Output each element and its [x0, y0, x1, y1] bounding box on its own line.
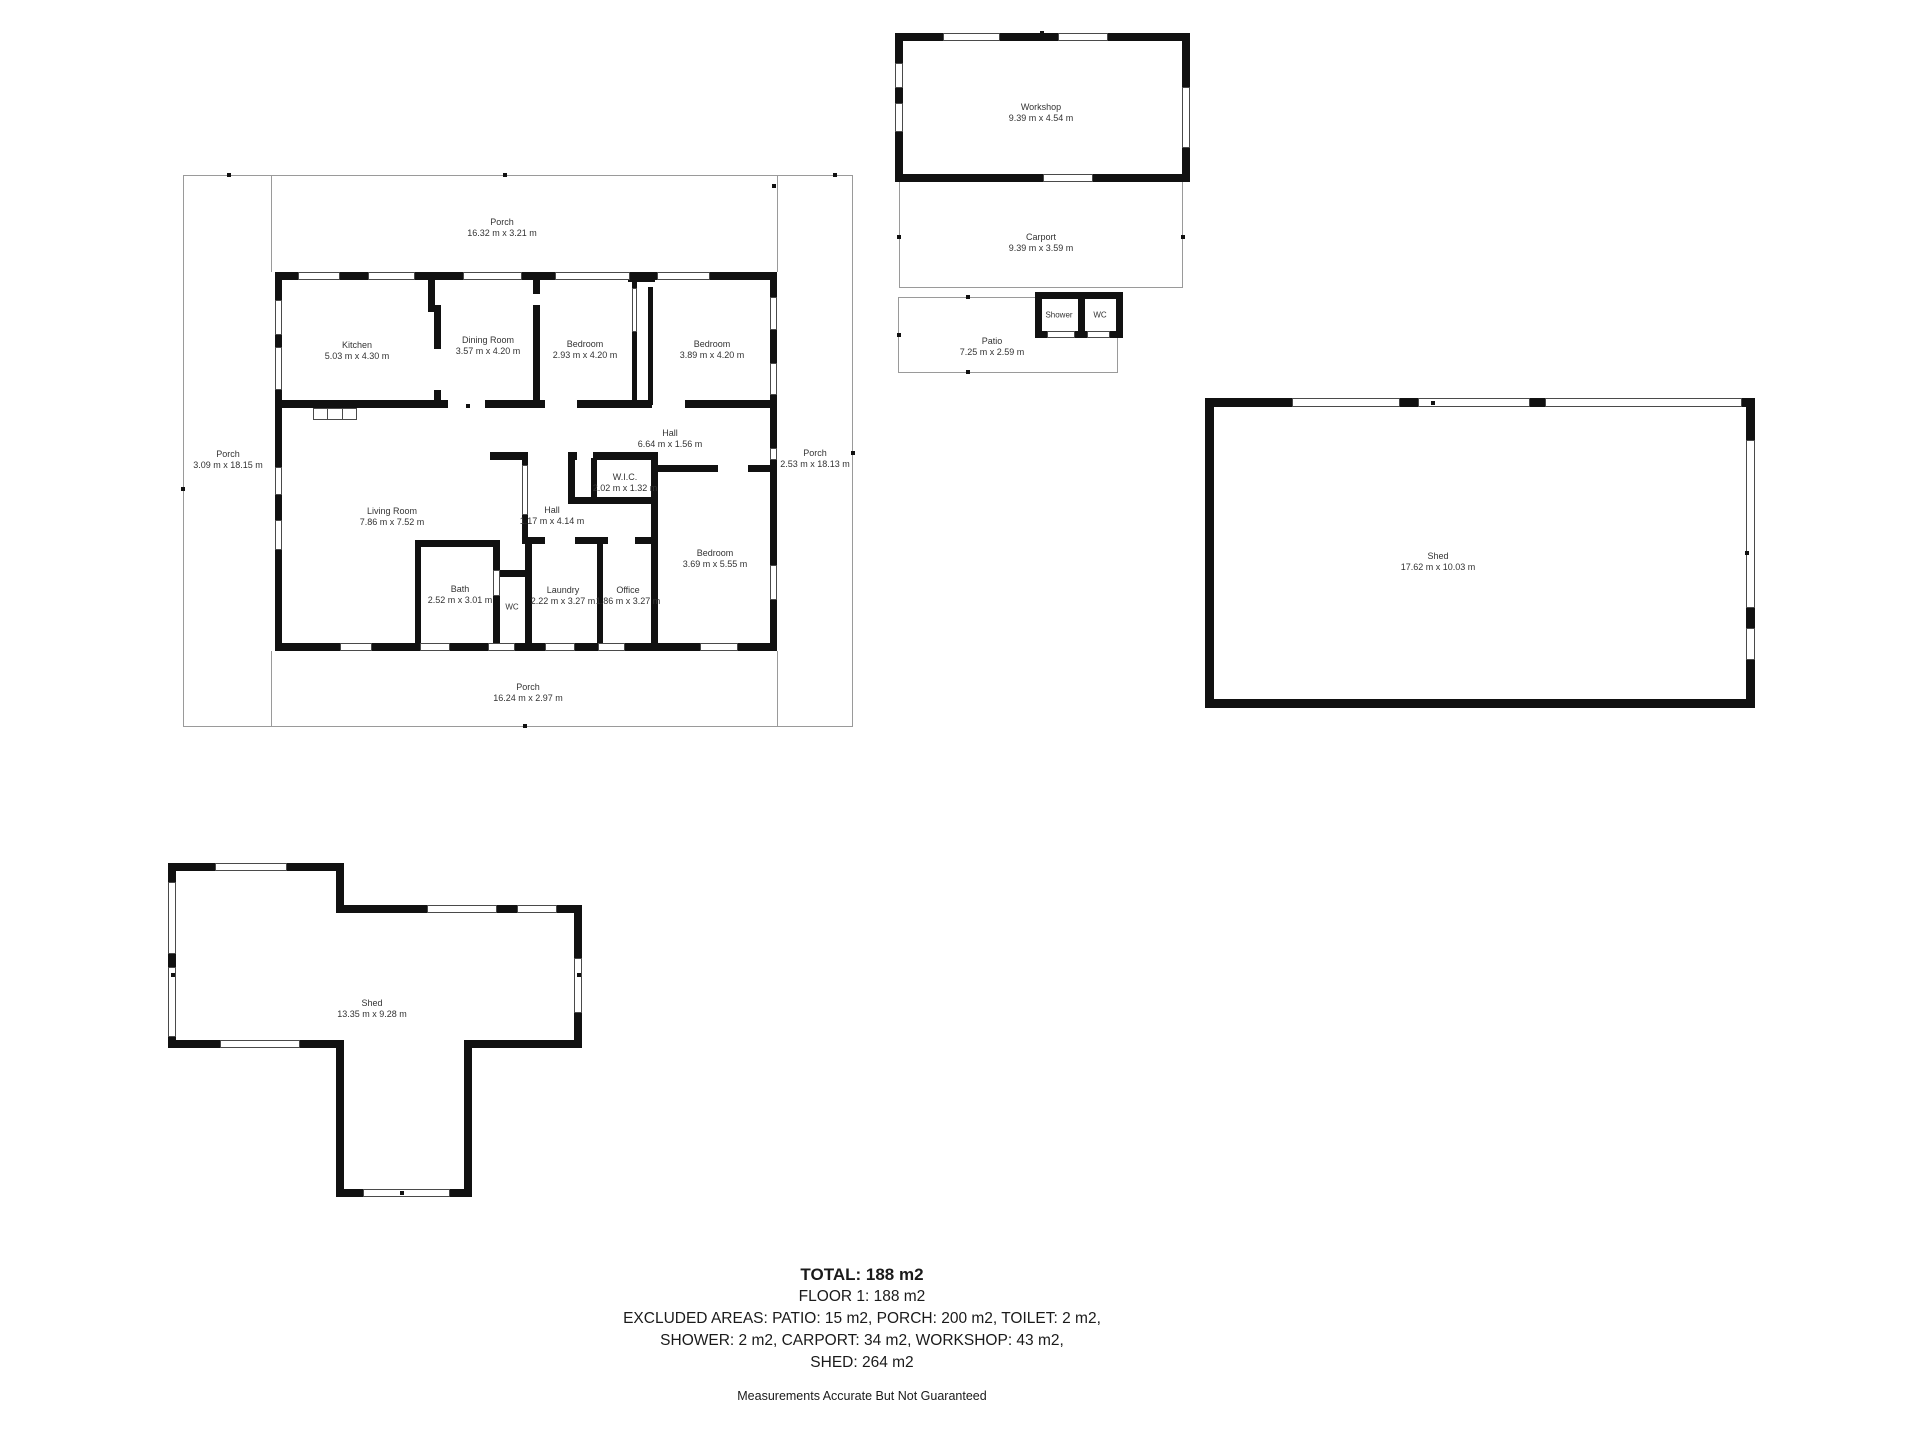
tick-mark	[851, 451, 855, 455]
summary-excluded-line1: EXCLUDED AREAS: PATIO: 15 m2, PORCH: 200…	[462, 1308, 1262, 1330]
window	[1545, 398, 1742, 407]
window	[770, 448, 777, 460]
room-label-bedroom1: Bedroom2.93 m x 4.20 m	[553, 339, 618, 361]
wall-segment	[568, 452, 575, 500]
room-name: Laundry	[531, 585, 596, 596]
window	[1746, 440, 1755, 608]
window	[517, 905, 557, 913]
tick-mark	[1431, 401, 1435, 405]
wall-segment	[748, 465, 777, 472]
room-dims: 3.69 m x 5.55 m	[683, 559, 748, 570]
wall-segment	[464, 1040, 472, 1197]
wall-segment	[648, 287, 653, 405]
window	[632, 288, 637, 332]
tick-mark	[227, 173, 231, 177]
porch-outline-line	[777, 175, 778, 272]
window	[574, 958, 582, 1013]
wall-segment	[434, 305, 441, 349]
porch-outline-line	[1117, 338, 1118, 373]
kitchen-counter	[313, 408, 357, 420]
wall-segment	[593, 452, 658, 460]
room-dims: 2.22 m x 3.27 m	[531, 596, 596, 607]
room-label-shower: Shower	[1045, 310, 1072, 321]
porch-outline-line	[777, 651, 778, 727]
window	[298, 272, 340, 280]
window	[427, 905, 497, 913]
room-name: WC	[505, 602, 518, 613]
wall-segment	[336, 1040, 344, 1197]
window	[598, 643, 625, 651]
room-label-shed-left: Shed13.35 m x 9.28 m	[337, 998, 407, 1020]
wall-segment	[1205, 398, 1292, 407]
wall-segment	[415, 540, 421, 643]
floorplan-canvas: Kitchen5.03 m x 4.30 m Dining Room3.57 m…	[0, 0, 1920, 1440]
tick-mark	[523, 724, 527, 728]
wall-segment	[577, 400, 652, 408]
room-name: Patio	[960, 336, 1025, 347]
room-name: Bedroom	[683, 548, 748, 559]
wall-segment	[575, 537, 608, 544]
window	[657, 272, 710, 280]
room-name: Carport	[1009, 232, 1074, 243]
summary-disclaimer: Measurements Accurate But Not Guaranteed	[462, 1388, 1262, 1404]
room-name: WC	[1093, 310, 1106, 321]
room-label-bath: Bath2.52 m x 3.01 m	[428, 584, 493, 606]
porch-outline-line	[899, 287, 1183, 288]
room-label-porch-right: Porch2.53 m x 18.13 m	[780, 448, 850, 470]
room-dims: 2.93 m x 4.20 m	[553, 350, 618, 361]
room-label-carport: Carport9.39 m x 3.59 m	[1009, 232, 1074, 254]
window	[895, 63, 903, 88]
room-name: Workshop	[1009, 102, 1074, 113]
porch-outline-line	[898, 372, 1118, 373]
room-label-wc: WC	[505, 602, 518, 613]
tick-mark	[1745, 551, 1749, 555]
window	[340, 643, 372, 651]
room-name: Kitchen	[325, 340, 390, 351]
window	[770, 297, 777, 330]
window	[493, 570, 500, 596]
room-label-bedroom3: Bedroom3.69 m x 5.55 m	[683, 548, 748, 570]
wall-segment	[568, 497, 658, 504]
room-label-hall-lower: Hall1.17 m x 4.14 m	[520, 505, 585, 527]
room-dims: 9.39 m x 3.59 m	[1009, 243, 1074, 254]
room-dims: 2.53 m x 18.13 m	[780, 459, 850, 470]
tick-mark	[171, 973, 175, 977]
room-dims: 3.89 m x 4.20 m	[680, 350, 745, 361]
wall-segment	[1746, 660, 1755, 708]
room-dims: 17.62 m x 10.03 m	[1401, 562, 1476, 573]
room-label-office: Office1.86 m x 3.27 m	[596, 585, 661, 607]
wall-segment	[485, 400, 545, 408]
wall-segment	[658, 465, 718, 472]
room-label-laundry: Laundry2.22 m x 3.27 m	[531, 585, 596, 607]
tick-mark	[503, 173, 507, 177]
room-label-hall-upper: Hall6.64 m x 1.56 m	[638, 428, 703, 450]
room-dims: 5.03 m x 4.30 m	[325, 351, 390, 362]
room-label-patio: Patio7.25 m x 2.59 m	[960, 336, 1025, 358]
room-label-porch-top: Porch16.32 m x 3.21 m	[467, 217, 537, 239]
wall-segment	[1746, 398, 1755, 440]
window	[943, 33, 1000, 41]
room-dims: 2.02 m x 1.32 m	[593, 483, 658, 494]
room-dims: 6.64 m x 1.56 m	[638, 439, 703, 450]
room-name: W.I.C.	[593, 472, 658, 483]
wall-segment	[1746, 608, 1755, 628]
window	[275, 347, 282, 390]
window	[1182, 87, 1190, 148]
porch-outline-line	[183, 175, 184, 727]
summary-excluded-line2: SHOWER: 2 m2, CARPORT: 34 m2, WORKSHOP: …	[462, 1330, 1262, 1352]
porch-outline-line	[271, 651, 272, 727]
kitchen-sink-right	[343, 409, 356, 419]
porch-outline-line	[271, 175, 272, 272]
room-name: Bedroom	[680, 339, 745, 350]
window	[1292, 398, 1400, 407]
room-dims: 16.24 m x 2.97 m	[493, 693, 563, 704]
wall-segment	[275, 400, 448, 408]
wall-segment	[635, 537, 655, 544]
window	[1047, 331, 1075, 338]
tick-mark	[833, 173, 837, 177]
room-label-porch-bottom: Porch16.24 m x 2.97 m	[493, 682, 563, 704]
wall-segment	[415, 540, 500, 547]
tick-mark	[1181, 235, 1185, 239]
room-dims: 3.09 m x 18.15 m	[193, 460, 263, 471]
window	[1087, 331, 1110, 338]
room-name: Porch	[493, 682, 563, 693]
window	[220, 1040, 300, 1048]
wall-segment	[1078, 292, 1085, 338]
window	[1746, 628, 1755, 660]
room-name: Dining Room	[456, 335, 521, 346]
room-name: Hall	[520, 505, 585, 516]
room-label-workshop: Workshop9.39 m x 4.54 m	[1009, 102, 1074, 124]
wall-segment	[685, 400, 777, 408]
room-name: Living Room	[360, 506, 425, 517]
window	[555, 272, 630, 280]
window	[463, 272, 522, 280]
tick-mark	[1431, 702, 1435, 706]
room-label-porch-left: Porch3.09 m x 18.15 m	[193, 449, 263, 471]
room-dims: 2.52 m x 3.01 m	[428, 595, 493, 606]
room-dims: 16.32 m x 3.21 m	[467, 228, 537, 239]
room-label-shed-right: Shed17.62 m x 10.03 m	[1401, 551, 1476, 573]
room-dims: 7.86 m x 7.52 m	[360, 517, 425, 528]
window	[168, 967, 176, 1037]
tick-mark	[897, 235, 901, 239]
tick-mark	[394, 907, 398, 911]
window	[700, 643, 738, 651]
window	[1043, 174, 1093, 182]
tick-mark	[966, 295, 970, 299]
window	[215, 863, 287, 871]
summary-excluded-line3: SHED: 264 m2	[462, 1352, 1262, 1374]
summary-total: TOTAL: 188 m2	[462, 1264, 1262, 1286]
room-dims: 1.86 m x 3.27 m	[596, 596, 661, 607]
window	[275, 467, 282, 495]
wall-segment	[522, 537, 545, 544]
room-label-kitchen: Kitchen5.03 m x 4.30 m	[325, 340, 390, 362]
window	[1058, 33, 1108, 41]
room-name: Shower	[1045, 310, 1072, 321]
window	[275, 300, 282, 335]
kitchen-sink-left	[314, 409, 328, 419]
window	[895, 103, 903, 132]
room-name: Shed	[337, 998, 407, 1009]
room-name: Bath	[428, 584, 493, 595]
wall-segment	[1205, 699, 1755, 708]
tick-mark	[577, 973, 581, 977]
room-label-bedroom2: Bedroom3.89 m x 4.20 m	[680, 339, 745, 361]
porch-outline-line	[183, 726, 853, 727]
room-name: Hall	[638, 428, 703, 439]
window	[545, 643, 575, 651]
room-dims: 13.35 m x 9.28 m	[337, 1009, 407, 1020]
porch-outline-line	[183, 175, 853, 176]
room-dims: 9.39 m x 4.54 m	[1009, 113, 1074, 124]
window	[420, 643, 450, 651]
room-name: Porch	[193, 449, 263, 460]
tick-mark	[897, 333, 901, 337]
tick-mark	[1206, 551, 1210, 555]
room-name: Office	[596, 585, 661, 596]
room-name: Shed	[1401, 551, 1476, 562]
room-dims: 1.17 m x 4.14 m	[520, 516, 585, 527]
room-label-dining: Dining Room3.57 m x 4.20 m	[456, 335, 521, 357]
room-name: Bedroom	[553, 339, 618, 350]
room-label-living: Living Room7.86 m x 7.52 m	[360, 506, 425, 528]
room-label-outbuilding-wc: WC	[1093, 310, 1106, 321]
window	[770, 363, 777, 395]
tick-mark	[1040, 31, 1044, 35]
tick-mark	[466, 404, 470, 408]
wall-segment	[533, 279, 540, 294]
tick-mark	[400, 1191, 404, 1195]
window	[275, 520, 282, 550]
wall-segment	[533, 305, 540, 407]
window	[363, 1189, 450, 1197]
area-summary: TOTAL: 188 m2 FLOOR 1: 188 m2 EXCLUDED A…	[462, 1264, 1262, 1404]
tick-mark	[966, 370, 970, 374]
window	[770, 565, 777, 600]
window	[488, 643, 515, 651]
tick-mark	[772, 184, 776, 188]
kitchen-sink-mid	[328, 409, 342, 419]
room-dims: 3.57 m x 4.20 m	[456, 346, 521, 357]
window	[168, 882, 176, 954]
summary-floor: FLOOR 1: 188 m2	[462, 1286, 1262, 1308]
room-label-wic: W.I.C.2.02 m x 1.32 m	[593, 472, 658, 494]
wall-segment	[1530, 398, 1545, 407]
window	[368, 272, 415, 280]
wall-segment	[500, 570, 525, 577]
room-name: Porch	[467, 217, 537, 228]
room-name: Porch	[780, 448, 850, 459]
room-dims: 7.25 m x 2.59 m	[960, 347, 1025, 358]
wall-segment	[1400, 398, 1418, 407]
tick-mark	[181, 487, 185, 491]
wall-segment	[472, 1040, 582, 1048]
